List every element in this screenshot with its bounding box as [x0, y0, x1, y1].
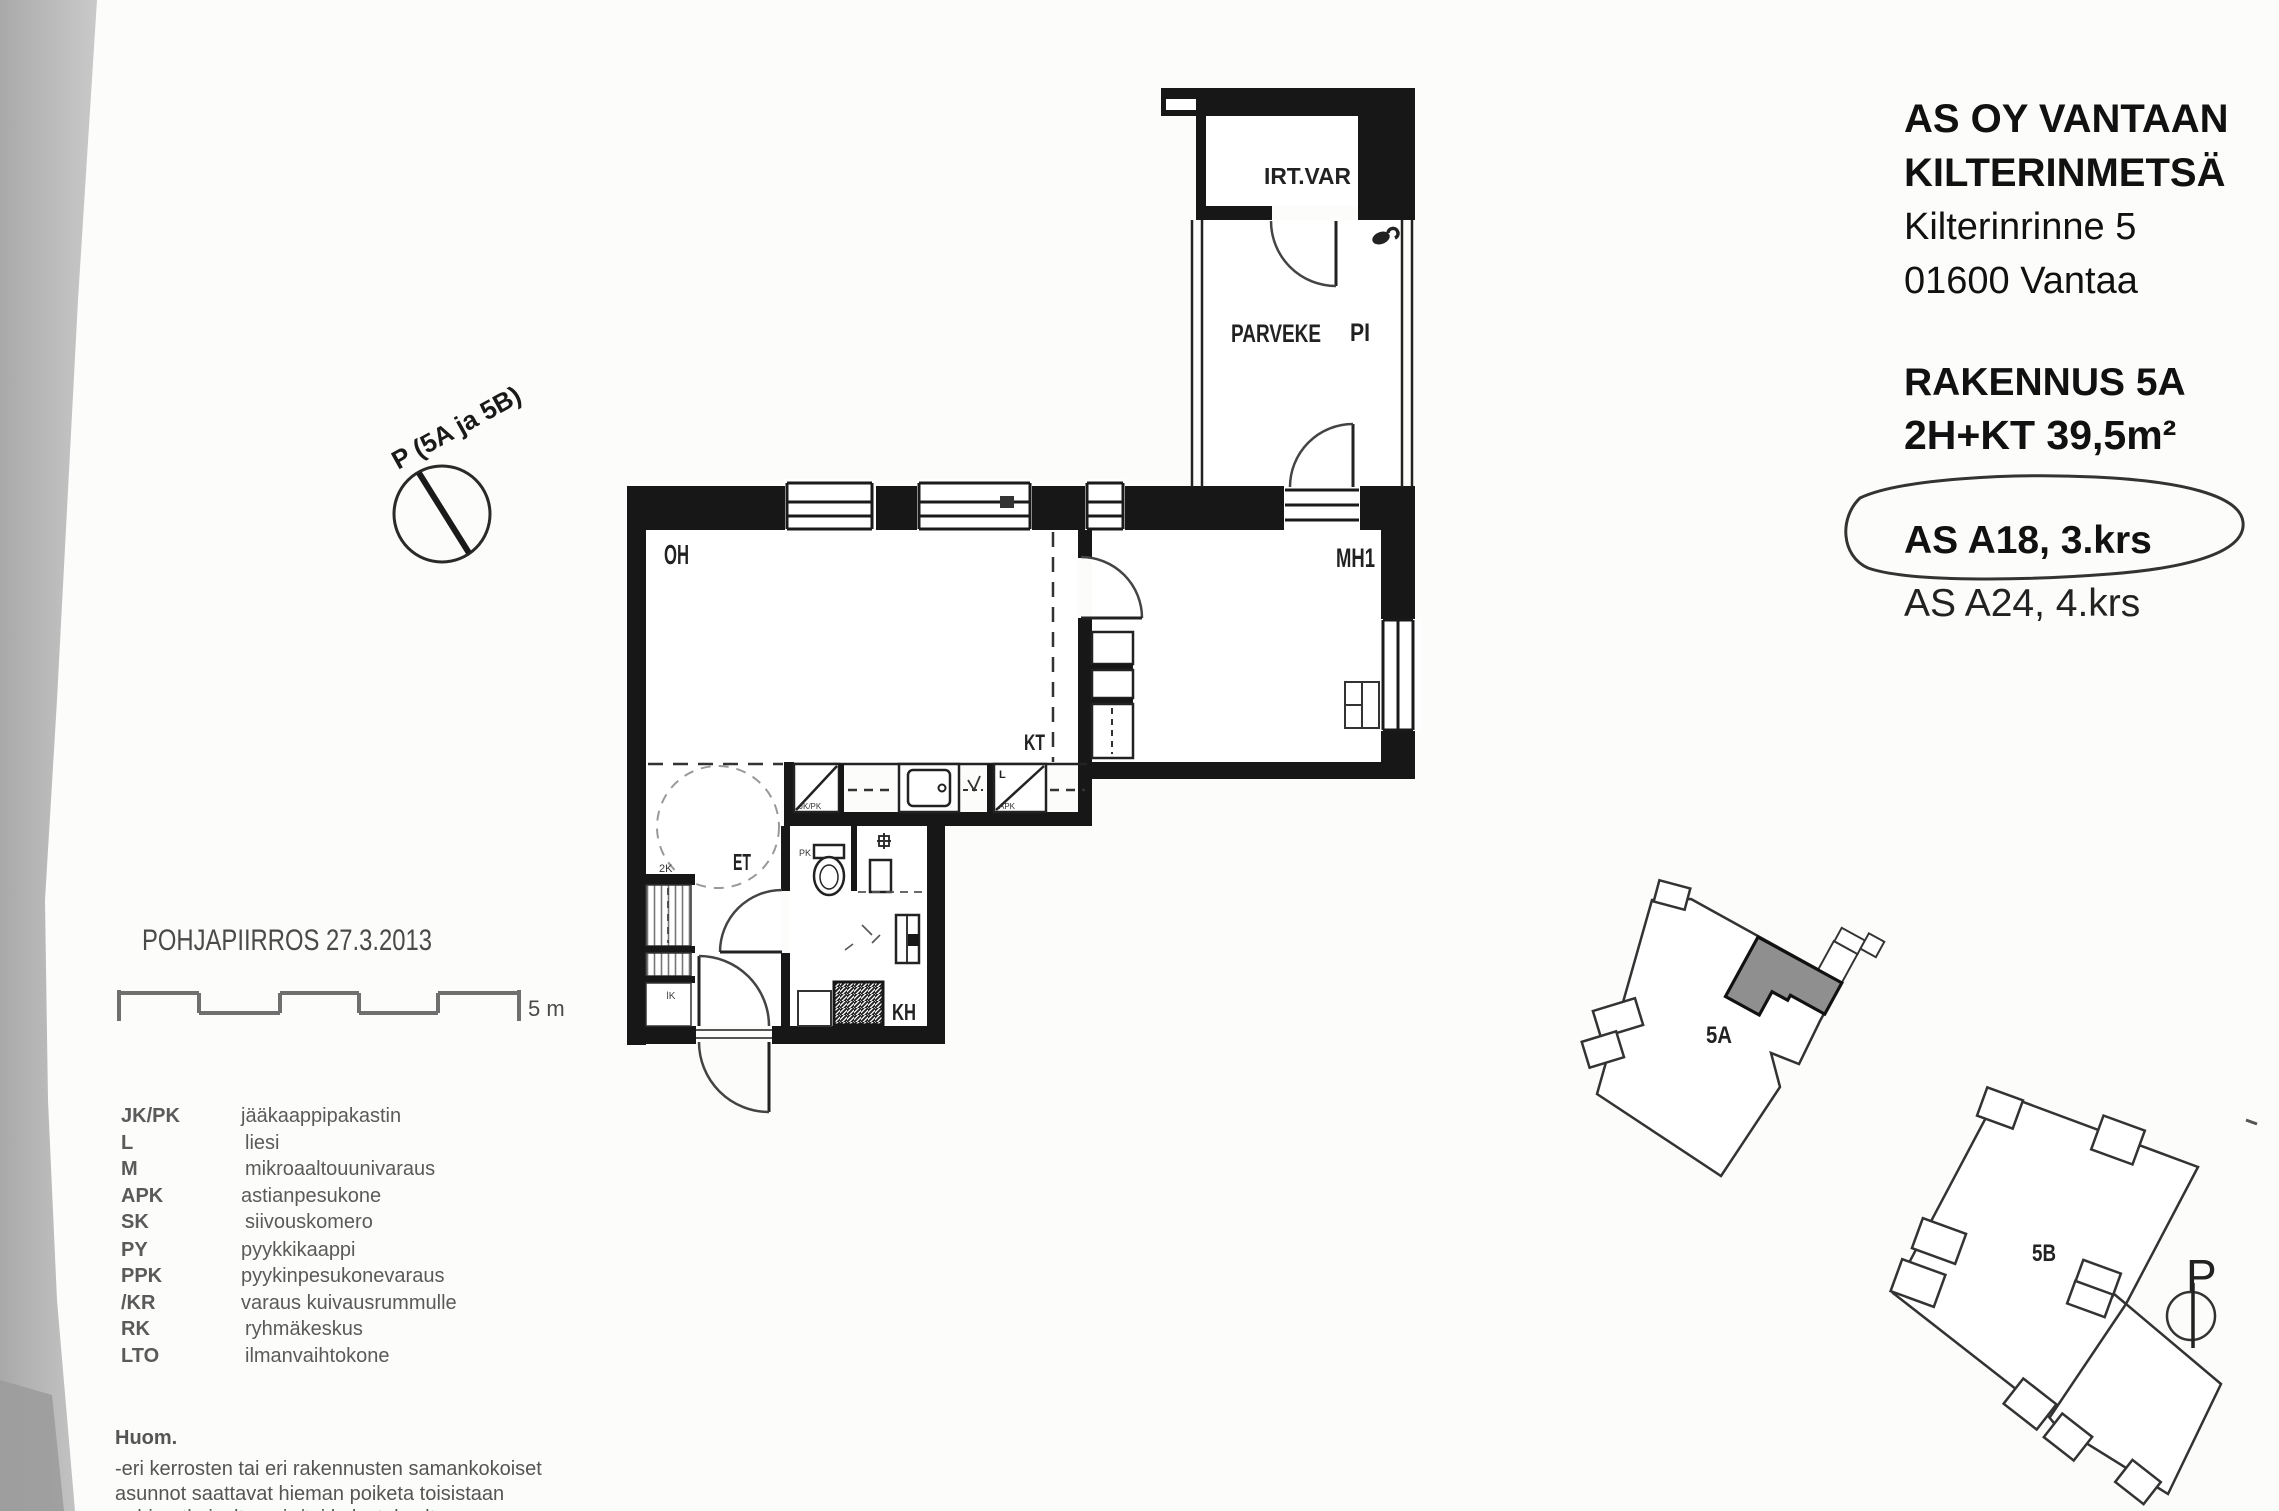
svg-text:jääkaappipakastin: jääkaappipakastin: [240, 1105, 401, 1127]
svg-text:L: L: [121, 1132, 133, 1154]
svg-text:5 m: 5 m: [528, 996, 565, 1021]
svg-text:IRT.VAR: IRT.VAR: [1264, 163, 1351, 189]
svg-text:pyykinpesukonevaraus: pyykinpesukonevaraus: [241, 1265, 444, 1287]
svg-text:-eri kerrosten tai eri rakennu: -eri kerrosten tai eri rakennusten saman…: [115, 1458, 542, 1480]
svg-text:PI: PI: [1350, 319, 1370, 347]
svg-text:ilmanvaihtokone: ilmanvaihtokone: [245, 1345, 390, 1367]
svg-text:2H+KT 39,5m²: 2H+KT 39,5m²: [1904, 412, 2176, 458]
svg-text:M: M: [121, 1158, 138, 1180]
svg-text:POHJAPIIRROS 27.3.2013: POHJAPIIRROS 27.3.2013: [142, 924, 432, 957]
svg-text:/KR: /KR: [121, 1292, 156, 1314]
svg-text:JK/PK: JK/PK: [799, 802, 822, 811]
svg-text:liesi: liesi: [245, 1132, 279, 1154]
svg-text:KH: KH: [892, 999, 916, 1025]
svg-text:MH1: MH1: [1336, 543, 1375, 573]
svg-text:APK: APK: [121, 1185, 164, 1207]
svg-text:KILTERINMETSÄ: KILTERINMETSÄ: [1904, 151, 2225, 195]
svg-text:pyykkikaappi: pyykkikaappi: [241, 1239, 356, 1261]
svg-text:ryhmäkeskus: ryhmäkeskus: [245, 1318, 363, 1340]
svg-text:01600 Vantaa: 01600 Vantaa: [1904, 260, 2139, 302]
svg-text:2K: 2K: [659, 863, 673, 875]
svg-text:AS OY VANTAAN: AS OY VANTAAN: [1904, 97, 2228, 141]
svg-text:JK/PK: JK/PK: [121, 1105, 180, 1127]
svg-text:lK: lK: [667, 991, 676, 1002]
svg-text:Huom.: Huom.: [115, 1427, 177, 1449]
svg-text:SK: SK: [121, 1211, 149, 1233]
svg-text:ET: ET: [733, 849, 751, 875]
svg-text:KT: KT: [1024, 730, 1045, 755]
svg-text:RAKENNUS 5A: RAKENNUS 5A: [1904, 361, 2186, 404]
svg-text:PARVEKE: PARVEKE: [1231, 320, 1321, 348]
svg-text:AS A18, 3.krs: AS A18, 3.krs: [1904, 519, 2152, 562]
svg-text:PPK: PPK: [121, 1265, 163, 1287]
svg-text:mikroaaltouunivaraus: mikroaaltouunivaraus: [245, 1158, 435, 1180]
svg-text:pohjaratkaisultaan ja/tai kalu: pohjaratkaisultaan ja/tai kalustukseltaa…: [115, 1507, 469, 1511]
svg-text:RK: RK: [121, 1318, 150, 1340]
svg-text:varaus kuivausrummulle: varaus kuivausrummulle: [241, 1292, 457, 1314]
svg-text:asunnot saattavat hieman poike: asunnot saattavat hieman poiketa toisist…: [115, 1483, 504, 1505]
svg-text:AS A24, 4.krs: AS A24, 4.krs: [1904, 582, 2140, 625]
svg-text:astianpesukone: astianpesukone: [241, 1185, 381, 1207]
svg-text:5A: 5A: [1706, 1022, 1732, 1049]
svg-text:LTO: LTO: [121, 1345, 159, 1367]
svg-text:L: L: [999, 769, 1006, 781]
svg-text:PK: PK: [799, 848, 811, 858]
svg-text:OH: OH: [664, 539, 689, 570]
svg-text:5B: 5B: [2032, 1240, 2056, 1267]
svg-text:Kilterinrinne 5: Kilterinrinne 5: [1904, 206, 2136, 248]
svg-text:APK: APK: [999, 802, 1016, 811]
svg-text:siivouskomero: siivouskomero: [245, 1211, 373, 1233]
svg-text:PY: PY: [121, 1239, 148, 1261]
